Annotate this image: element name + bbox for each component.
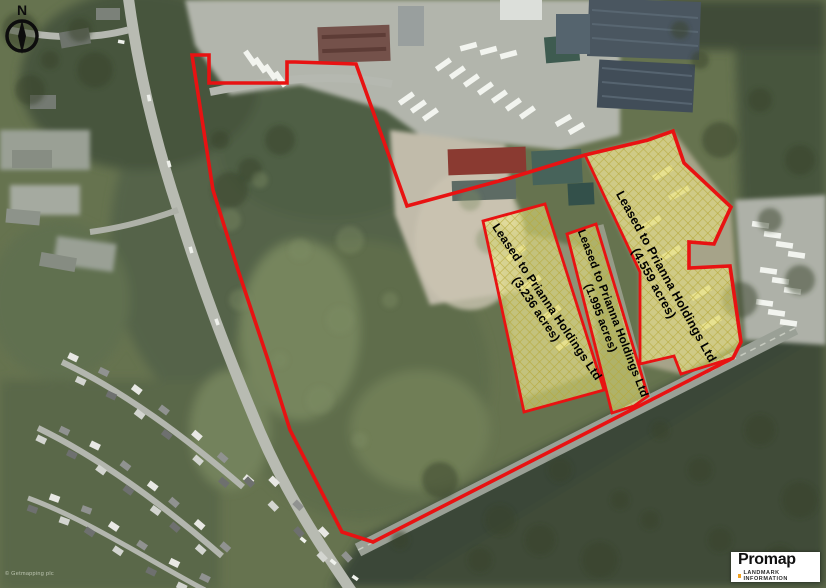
- imagery-attribution: © Getmapping plc: [5, 571, 54, 577]
- promap-brand-text: Promap: [738, 552, 815, 568]
- aerial-map: Leased to Prianna Holdings Ltd (3.236 ac…: [0, 0, 826, 588]
- north-compass-icon: N: [0, 0, 44, 62]
- landmark-dot-icon: [738, 574, 741, 578]
- promap-logo: Promap LANDMARK INFORMATION: [731, 552, 820, 582]
- site-plan-overlay: [0, 0, 826, 588]
- compass-north-label: N: [17, 2, 27, 18]
- landmark-tagline: LANDMARK INFORMATION: [743, 570, 815, 582]
